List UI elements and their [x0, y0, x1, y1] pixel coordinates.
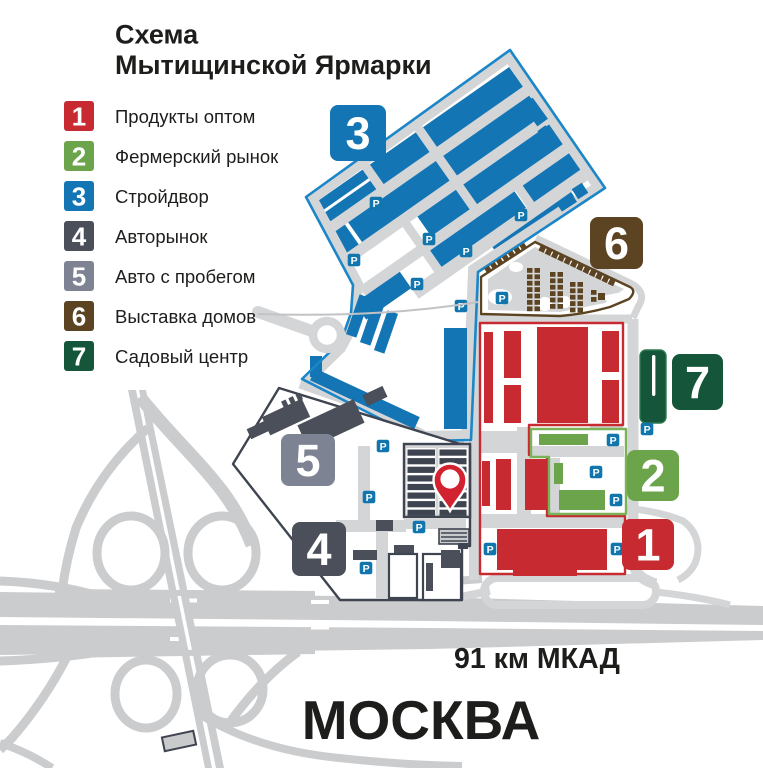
svg-text:2: 2	[640, 450, 665, 501]
svg-text:2: 2	[72, 142, 86, 172]
svg-text:Садовый центр: Садовый центр	[115, 346, 248, 367]
svg-text:Авто с пробегом: Авто с пробегом	[115, 266, 255, 287]
svg-text:P: P	[351, 255, 358, 267]
svg-text:5: 5	[295, 435, 320, 486]
svg-text:МОСКВА: МОСКВА	[302, 689, 541, 751]
svg-text:P: P	[373, 198, 380, 210]
svg-text:Стройдвор: Стройдвор	[115, 186, 209, 207]
svg-text:Схема: Схема	[115, 20, 199, 50]
svg-text:P: P	[487, 544, 494, 556]
svg-text:P: P	[416, 522, 423, 534]
svg-text:6: 6	[604, 218, 629, 269]
svg-text:P: P	[613, 495, 620, 507]
svg-text:6: 6	[72, 302, 86, 332]
svg-text:P: P	[499, 293, 506, 305]
svg-text:P: P	[593, 467, 600, 479]
svg-text:5: 5	[72, 262, 86, 292]
svg-text:P: P	[380, 441, 387, 453]
svg-text:Авторынок: Авторынок	[115, 226, 208, 247]
svg-text:91 км МКАД: 91 км МКАД	[454, 643, 620, 675]
svg-text:Фермерский рынок: Фермерский рынок	[115, 146, 279, 167]
svg-text:1: 1	[72, 102, 86, 132]
svg-text:1: 1	[635, 519, 660, 570]
svg-text:4: 4	[72, 222, 87, 252]
svg-text:7: 7	[685, 357, 710, 408]
svg-text:Продукты оптом: Продукты оптом	[115, 106, 255, 127]
svg-text:7: 7	[72, 342, 86, 372]
svg-text:P: P	[426, 234, 433, 246]
svg-text:P: P	[363, 563, 370, 575]
svg-text:P: P	[518, 210, 525, 222]
svg-text:4: 4	[306, 524, 331, 575]
svg-text:P: P	[463, 246, 470, 258]
svg-text:Мытищинской Ярмарки: Мытищинской Ярмарки	[115, 50, 432, 80]
svg-text:P: P	[610, 435, 617, 447]
svg-text:Выставка домов: Выставка домов	[115, 306, 256, 327]
svg-text:3: 3	[345, 108, 370, 159]
svg-text:P: P	[366, 492, 373, 504]
svg-text:P: P	[644, 424, 651, 436]
svg-text:P: P	[414, 279, 421, 291]
svg-text:P: P	[458, 301, 465, 313]
svg-text:P: P	[614, 544, 621, 556]
svg-text:3: 3	[72, 182, 86, 212]
